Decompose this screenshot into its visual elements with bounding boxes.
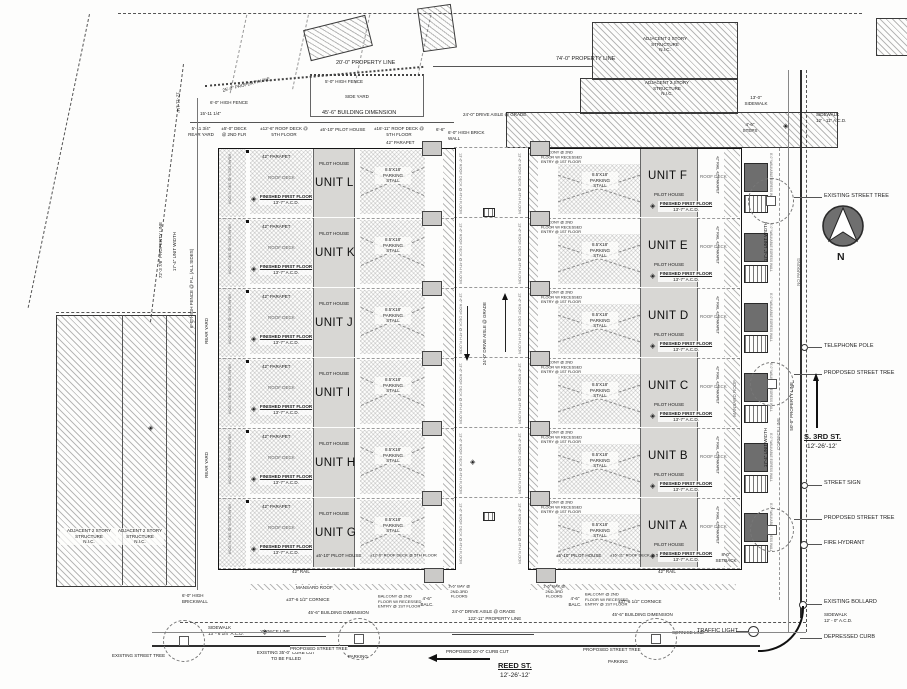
pilot-house-band: PILOT HOUSE UNIT L (313, 148, 355, 217)
rear-fence-line (197, 98, 198, 590)
deck-edge-strip (443, 288, 454, 357)
deck-edge-strip (443, 358, 454, 427)
entry-steps (744, 265, 768, 283)
pilot-house-dim-a: ±5'-10" PILOT HOUSE (556, 553, 601, 559)
rail-label: 42" RAIL (292, 569, 310, 575)
leader-line (806, 604, 822, 605)
balcony-box (530, 281, 550, 296)
roof-deck-label: ROOF DECK (268, 525, 295, 531)
pilot-house-label: PILOT HOUSE (319, 231, 349, 237)
adjacent-structure-a-label: ADJACENT 3 STORY STRUCTURE N.I.C. (610, 36, 720, 53)
roof-deck-4th-label: 13'-6" ROOF DECK @ 4TH FLOOR (517, 223, 522, 284)
survey-marker: ◈ (783, 122, 788, 130)
stoop-block: 8'-0" WALKABLE EGRESS WALL (742, 428, 780, 498)
dim-15-label: 15'-11 1/4" (200, 111, 221, 117)
rear-deck-label: REAR DECK @ 2ND FLOOR (227, 154, 232, 204)
fff-label: FINISHED FIRST FLOOR 13'-7" A.C.D. (259, 334, 313, 345)
balcony-box (530, 421, 550, 436)
deck-2nd-dim: ±5'-0" DECK @ 2ND FLR (218, 126, 250, 137)
property-line-74-label: 74'-0" PROPERTY LINE (556, 56, 615, 63)
setback-label: 8'-0" SETBACK (712, 552, 740, 563)
post-marker (246, 360, 249, 363)
fff-line2: 13'-7" A.C.D. (259, 340, 313, 346)
parking-stall: 8.5'X18' PARKING STALL (558, 374, 640, 424)
stall-label: 8.5'X18' PARKING STALL (582, 242, 618, 259)
rear-yard-label: REAR YARD (204, 452, 210, 478)
proposed-street-tree (750, 362, 794, 406)
aisle-centerline (454, 497, 528, 498)
survey-marker: ◈ (470, 458, 475, 466)
fff-marker: ◈ (650, 412, 655, 420)
third-st-lanes: 12'-26'-12' (807, 443, 837, 451)
property-line-72-label: 72'-3 7/8" PROPERTY LINE (158, 222, 164, 278)
roof-deck-4th-label: 13'-6" ROOF DECK @ 4TH FLOOR (458, 433, 463, 494)
fff-marker: ◈ (251, 195, 256, 203)
fire-hydrant-label: FIRE HYDRANT (824, 540, 865, 547)
fff-line2: 13'-7" A.C.D. (259, 270, 313, 276)
unit-row-west: REAR DECK @ 2ND FLOOR 42" PARAPET ROOF D… (218, 358, 454, 429)
reed-st-arrow-head (428, 654, 437, 662)
pilot-house-band: PILOT HOUSE UNIT K (313, 218, 355, 287)
pilot-house-label: PILOT HOUSE (654, 542, 684, 548)
adjacent-structure-sliver (417, 4, 457, 52)
third-st-arrow (816, 380, 818, 428)
fff-line1: FINISHED FIRST FLOOR (658, 271, 714, 277)
roof-deck-label: ROOF DECK (268, 175, 295, 181)
parking-label: PARKING (608, 659, 628, 665)
property-line-20-label: 20'-0" PROPERTY LINE (336, 60, 395, 67)
roof-deck-label: ROOF DECK (268, 245, 295, 251)
aisle-centerline (454, 147, 528, 148)
rear-deck-label: REAR DECK @ 2ND FLOOR (227, 364, 232, 414)
egress-wall-label: 8'-0" WALKABLE EGRESS WALL (769, 223, 773, 272)
unit-width-label-right: 17'-4" UNIT WIDTH (763, 428, 769, 467)
stall-label: 8.5'X18' PARKING STALL (375, 447, 411, 464)
unit-label: UNIT I (315, 387, 350, 399)
deck-edge-strip (443, 428, 454, 497)
survey-marker: ◈ (148, 424, 153, 432)
parapet-label: 42" PARAPET (262, 364, 291, 370)
rear-deck-label: REAR DECK @ 2ND FLOOR (227, 504, 232, 554)
stall-label: 8.5'X18' PARKING STALL (375, 237, 411, 254)
roof-deck-label: ROOF DECK (700, 314, 727, 320)
parking-stall: 8.5'X18' PARKING STALL (558, 234, 640, 284)
roofdeck-12-dim: ±12'-6" ROOF DECK @ 5TH FLOOR (254, 126, 314, 137)
property-line-50-label: 50'-0" PROPERTY LINE (789, 382, 795, 431)
fff-line1: FINISHED FIRST FLOOR (259, 264, 313, 270)
parking-stall: 8.5'X18' PARKING STALL (360, 220, 425, 284)
leader-line (794, 519, 822, 520)
post-marker (246, 220, 249, 223)
fff-line1: FINISHED FIRST FLOOR (658, 341, 714, 347)
fff-marker: ◈ (251, 475, 256, 483)
depressed-curb-label: DEPRESSED CURB (824, 634, 875, 641)
fff-line1: FINISHED FIRST FLOOR (658, 481, 714, 487)
roof-deck-4th-label: 13'-6" ROOF DECK @ 4TH FLOOR (517, 293, 522, 354)
post-marker (246, 150, 249, 153)
existing-tree-label-bottom: EXISTING STREET TREE (112, 653, 165, 659)
fff-marker: ◈ (650, 342, 655, 350)
north-arrow-icon (820, 203, 866, 249)
telephone-pole-label: TELEPHONE POLE (824, 343, 874, 350)
property-line-segment (433, 66, 593, 67)
parking-stall: 8.5'X18' PARKING STALL (360, 360, 425, 424)
street-sign-label: STREET SIGN (824, 480, 861, 487)
pilot-house-label: PILOT HOUSE (319, 161, 349, 167)
roof-deck-label: ROOF DECK (268, 385, 295, 391)
mansard-roof-label: MANSARD ROOF (296, 585, 333, 591)
unit-row-east: 13'-6" ROOF DECK @ 4TH FLOOR BALCONY @ 2… (528, 428, 740, 499)
entry-steps (744, 405, 768, 423)
rail-parapet-label: 42" RAIL 42" PARAPET (715, 366, 720, 404)
aisle-centerline (454, 287, 528, 288)
fence-pl-label: 6'-0" HIGH FENCE @ P.L. (ALL SIDES) (189, 238, 195, 328)
rear-deck-strip: REAR DECK @ 2ND FLOOR (218, 498, 246, 567)
fff-line2: 13'-7" A.C.D. (658, 557, 714, 563)
dimension-line (190, 122, 454, 123)
adjacent-structure-divider (166, 315, 167, 585)
balc-46-label: 4'-6" BALC. (566, 596, 584, 607)
roof-deck-4th-label: 13'-6" ROOF DECK @ 4TH FLOOR (458, 293, 463, 354)
balcony-box (422, 281, 442, 296)
brick-wall-label: 6'-0" HIGH BRICK WALL (448, 130, 490, 141)
fff-line2: 13'-7" A.C.D. (658, 487, 714, 493)
adjacent-structure-sliver (303, 15, 373, 62)
curb-return-arc (758, 606, 804, 652)
steps-46-label: 4'-6" STEPS (738, 122, 762, 133)
parking-stall: 8.5'X18' PARKING STALL (360, 150, 425, 214)
stall-label: 8.5'X18' PARKING STALL (375, 167, 411, 184)
fff-line2: 13'-7" A.C.D. (658, 207, 714, 213)
leader-line (807, 544, 822, 545)
parapet-dim-top: 42" PARAPET (386, 140, 415, 146)
roof-deck-label: ROOF DECK (700, 454, 727, 460)
deck-edge-strip (528, 218, 538, 287)
proposed-tree-label: PROPOSED STREET TREE (824, 515, 894, 522)
parking-label: PARKING (348, 654, 368, 660)
fff-line1: FINISHED FIRST FLOOR (259, 194, 313, 200)
tree-trunk (767, 525, 777, 535)
fff-line2: 13'-7" A.C.D. (259, 550, 313, 556)
post-marker (246, 430, 249, 433)
unit-label: UNIT C (648, 380, 689, 392)
north-label: N (837, 251, 845, 263)
unit-row-east: 13'-6" ROOF DECK @ 4TH FLOOR BALCONY @ 2… (528, 288, 740, 359)
proposed-tree-label-bottom: PROPOSED STREET TREE (290, 646, 348, 652)
balcony-box (530, 351, 550, 366)
roof-deck-label: ROOF DECK (268, 455, 295, 461)
building-dimension-bottom: 45'-6" BUILDING DIMENSION (308, 610, 369, 616)
parking-stall: 8.5'X18' PARKING STALL (360, 290, 425, 354)
balcony-box (422, 421, 442, 436)
fff-line1: FINISHED FIRST FLOOR (259, 474, 313, 480)
stall-label: 8.5'X18' PARKING STALL (582, 452, 618, 469)
rail-parapet-label: 42" RAIL 42" PARAPET (715, 156, 720, 194)
roofdeck-dim-g: ±12'-6" ROOF DECK @ 5TH FLOOR (370, 553, 437, 558)
roof-deck-label: ROOF DECK (700, 524, 727, 530)
flow-arrow-up (505, 300, 506, 352)
fff-line2: 13'-7" A.C.D. (259, 410, 313, 416)
stall-label: 8.5'X18' PARKING STALL (375, 307, 411, 324)
roof-deck-label: ROOF DECK (700, 384, 727, 390)
entry-steps (744, 475, 768, 493)
parking-stall: 8.5'X18' PARKING STALL (558, 164, 640, 214)
rear-deck-label: REAR DECK @ 2ND FLOOR (227, 224, 232, 274)
fff-line2: 13'-7" A.C.D. (658, 417, 714, 423)
stoop (744, 303, 768, 332)
fff-line1: FINISHED FIRST FLOOR (658, 551, 714, 557)
fff-line2: 13'-7" A.C.D. (259, 200, 313, 206)
curb-cut-proposed-line (452, 634, 534, 635)
aisle-centerline (454, 217, 528, 218)
rear-yard-dim: 5'-11 3/4" REAR YARD (186, 126, 216, 137)
roofdeck-16-dim: ±16'-11" ROOF DECK @ 5TH FLOOR (368, 126, 430, 137)
rear-deck-strip: REAR DECK @ 2ND FLOOR (218, 428, 246, 497)
arrow-head-down (464, 354, 470, 361)
rail-parapet-label: 42" RAIL 42" PARAPET (715, 506, 720, 544)
bay-16-label: 1'-6" BAY @ 2ND-3RD FLOORS (443, 584, 475, 599)
fff-line2: 13'-7" A.C.D. (658, 347, 714, 353)
parapet-label: 42" PARAPET (262, 154, 291, 160)
rear-yard-label: REAR YARD (204, 318, 210, 344)
stall-label: 8.5'X18' PARKING STALL (375, 377, 411, 394)
adjacent-structure-left (56, 315, 196, 587)
adjacent-structure-b-label: ADJACENT 2 STORY STRUCTURE N.I.C. (612, 80, 722, 97)
unit-label: UNIT A (648, 520, 687, 532)
balcony-box (530, 491, 550, 506)
stall-label: 8.5'X18' PARKING STALL (582, 172, 618, 189)
light-fixture-icon (483, 512, 495, 521)
fff-line1: FINISHED FIRST FLOOR (259, 334, 313, 340)
roof-deck-label: ROOF DECK (700, 174, 727, 180)
leader-line (807, 347, 822, 348)
sidewalk-13-6-label: SIDEWALK 13' - 6 1/4" A.C.D. (208, 625, 260, 636)
fence-6-label: 6'-0" HIGH FENCE (210, 100, 248, 106)
pilot-house-label: PILOT HOUSE (319, 511, 349, 517)
unit-label: UNIT F (648, 170, 687, 182)
mansard-strip-bottom-west (250, 584, 452, 590)
flow-arrow-down (467, 306, 468, 356)
fff-line2: 13'-7" A.C.D. (259, 480, 313, 486)
roof-deck-4th-label: 13'-6" ROOF DECK @ 4TH FLOOR (458, 363, 463, 424)
adjacent-left-b-label: ADJACENT 2 STORY STRUCTURE N.I.C. (116, 528, 164, 545)
proposed-street-tree-bottom (635, 618, 677, 660)
tree-trunk (354, 634, 364, 644)
tree-trunk (651, 634, 661, 644)
balcony-box (530, 141, 550, 156)
sidewalk-line-bottom (152, 632, 806, 633)
unit-label: UNIT B (648, 450, 688, 462)
sidewalk-12-0-label: SIDEWALK 12' - 0" A.C.D. (824, 612, 884, 623)
brickwall-label: 6'-0" HIGH BRICKWALL (182, 593, 222, 604)
rear-deck-strip: REAR DECK @ 2ND FLOOR (218, 218, 246, 287)
pilot-house-label: PILOT HOUSE (654, 262, 684, 268)
parking-stall: 8.5'X18' PARKING STALL (558, 444, 640, 494)
fff-label: FINISHED FIRST FLOOR 13'-7" A.C.D. (259, 264, 313, 275)
pilot-house-band: PILOT HOUSE UNIT J (313, 288, 355, 357)
prop-12-dim: 12'-11 1/4" (175, 92, 181, 113)
balcony-box (424, 568, 444, 583)
unit-width-label-right: 17'-4" UNIT WIDTH (763, 222, 769, 261)
fff-marker: ◈ (650, 552, 655, 560)
rail-parapet-label: 42" RAIL 42" PARAPET (715, 226, 720, 264)
unit-width-label-left: 17'-4" UNIT WIDTH (172, 232, 178, 271)
curb-cut-existing-label: EXISTING 35'-0" CURB CUT TO BE FILLED (230, 650, 342, 661)
deck-edge-strip (528, 498, 538, 567)
unit-row-east: 13'-6" ROOF DECK @ 4TH FLOOR BALCONY @ 2… (528, 148, 740, 219)
fire-hydrant-symbol (800, 541, 808, 549)
roof-deck-4th-label: 13'-6" ROOF DECK @ 4TH FLOOR (458, 503, 463, 564)
stall-label: 8.5'X18' PARKING STALL (582, 522, 618, 539)
drive-aisle-top-label: 24'-0" DRIVE AISLE @ GRADE (463, 112, 526, 118)
deck-edge-strip (443, 218, 454, 287)
pilot-house-label: PILOT HOUSE (654, 332, 684, 338)
entry-steps (744, 335, 768, 353)
stoop-block: 8'-0" WALKABLE EGRESS WALL (742, 288, 780, 358)
mansard-strip (724, 288, 740, 357)
balcony-box (530, 211, 550, 226)
parapet-label: 42" PARAPET (262, 294, 291, 300)
rear-deck-strip: REAR DECK @ 2ND FLOOR (218, 358, 246, 427)
existing-tree-label: EXISTING STREET TREE (824, 193, 889, 200)
parapet-label: 42" PARAPET (262, 434, 291, 440)
mansard-strip (724, 218, 740, 287)
pilot-house-dim-g: ±5'-10" PILOT HOUSE (316, 553, 361, 559)
egress-wall-label: 8'-0" WALKABLE EGRESS WALL (769, 433, 773, 482)
site-plan: ADJACENT 3 STORY STRUCTURE N.I.C. ADJACE… (0, 0, 907, 689)
third-st-arrow-head (813, 373, 819, 381)
rear-deck-strip: REAR DECK @ 2ND FLOOR (218, 288, 246, 357)
fff-marker: ◈ (251, 545, 256, 553)
fff-line1: FINISHED FIRST FLOOR (259, 544, 313, 550)
side-yard-label: SIDE YARD (345, 94, 369, 100)
deck-edge-strip (443, 148, 454, 217)
roof-deck-4th-label: 13'-6" ROOF DECK @ 4TH FLOOR (517, 153, 522, 214)
fence-5-label: 5'-0" HIGH FENCE (325, 79, 363, 85)
roof-deck-4th-label: 13'-6" ROOF DECK @ 4TH FLOOR (517, 363, 522, 424)
balcony-box (536, 568, 556, 583)
rail-parapet-label: 42" RAIL 42" PARAPET (715, 436, 720, 474)
unit-label: UNIT L (315, 177, 354, 189)
tree-trunk (766, 196, 776, 206)
fff-label: FINISHED FIRST FLOOR 13'-7" A.C.D. (259, 474, 313, 485)
parapet-label: 42" PARAPET (262, 224, 291, 230)
rear-deck-label: REAR DECK @ 2ND FLOOR (227, 294, 232, 344)
balcony-box (422, 351, 442, 366)
fff-label: FINISHED FIRST FLOOR 13'-7" A.C.D. (658, 411, 714, 422)
curb-cut-existing-line (234, 636, 326, 637)
fff-line1: FINISHED FIRST FLOOR (658, 201, 714, 207)
parking-stall: 8.5'X18' PARKING STALL (360, 430, 425, 494)
unit-row-west: REAR DECK @ 2ND FLOOR 42" PARAPET ROOF D… (218, 428, 454, 499)
property-line-left-horiz (56, 312, 196, 313)
roof-deck-label: ROOF DECK (268, 315, 295, 321)
cornice-37-label: ±37'-6 1/2" CORNICE (286, 597, 329, 603)
drive-aisle-center-label: 24'-0" DRIVE AISLE @ GRADE (482, 302, 488, 365)
roof-deck-4th-label: 13'-6" ROOF DECK @ 4TH FLOOR (517, 433, 522, 494)
curb-cut-proposed-label: PROPOSED 20'-0" CURB CUT (446, 649, 509, 655)
stall-label: 8.5'X18' PARKING STALL (582, 312, 618, 329)
fff-line1: FINISHED FIRST FLOOR (658, 411, 714, 417)
deck-edge-strip (528, 358, 538, 427)
light-fixture-icon (483, 208, 495, 217)
deck-edge-strip (443, 498, 454, 567)
rear-deck-strip: REAR DECK @ 2ND FLOOR (218, 148, 246, 217)
deck-edge-strip (528, 148, 538, 217)
deck-edge-strip (528, 288, 538, 357)
unit-label: UNIT G (315, 527, 356, 539)
pilot-house-band: PILOT HOUSE UNIT I (313, 358, 355, 427)
rail-parapet-label: 42" RAIL 42" PARAPET (715, 296, 720, 334)
cornice-37-label: ±37'-6 1/2" CORNICE (618, 599, 661, 605)
sidewalk-12-11-label: SIDEWALK 12' - 11" A.C.D. (816, 112, 872, 123)
roof-deck-4th-label: 13'-6" ROOF DECK @ 4TH FLOOR (458, 153, 463, 214)
roof-deck-4th-label: 13'-6" ROOF DECK @ 4TH FLOOR (458, 223, 463, 284)
bollard-label: EXISTING BOLLARD (824, 599, 877, 606)
fff-marker: ◈ (251, 265, 256, 273)
building-dimension-top: 45'-6" BUILDING DIMENSION (322, 110, 396, 117)
leader-line (794, 197, 822, 198)
arrow-head-up (502, 293, 508, 300)
unit-label: UNIT D (648, 310, 689, 322)
property-line-bottom (180, 622, 806, 623)
dim-66-label: 6'-6" (436, 127, 445, 133)
balcony-box (422, 491, 442, 506)
tree-trunk (179, 636, 189, 646)
property-line-122-label: 122'-11" PROPERTY LINE (468, 616, 521, 622)
aisle-centerline (454, 427, 528, 428)
unit-label: UNIT H (315, 457, 356, 469)
leader-line (800, 638, 822, 639)
drive-aisle-bottom-label: 24'-0" DRIVE AISLE @ GRADE (452, 609, 515, 615)
roof-deck-label: ROOF DECK (700, 244, 727, 250)
reed-st-label: REED ST. (498, 661, 532, 670)
balc-46-label: 4'-6" BALC. (418, 596, 436, 607)
pilot-house-label: PILOT HOUSE (654, 192, 684, 198)
fff-label: FINISHED FIRST FLOOR 13'-7" A.C.D. (259, 544, 313, 555)
unit-row-east: 13'-6" ROOF DECK @ 4TH FLOOR BALCONY @ 2… (528, 358, 740, 429)
unit-label: UNIT J (315, 317, 353, 329)
pilot-house-label: PILOT HOUSE (654, 402, 684, 408)
leader-line (807, 485, 822, 486)
rail-label: 42" RAIL (658, 569, 676, 575)
fff-label: FINISHED FIRST FLOOR 13'-7" A.C.D. (658, 271, 714, 282)
existing-street-tree (748, 178, 794, 224)
sidewalk-13-label: 13'-0" SIDEWALK (741, 95, 771, 106)
pilot-house-dim: ±5'-10" PILOT HOUSE (320, 127, 365, 133)
fff-line2: 13'-7" A.C.D. (658, 277, 714, 283)
pilot-house-label: PILOT HOUSE (319, 441, 349, 447)
reed-st-lanes: 12'-26'-12' (500, 672, 530, 680)
unit-row-west: REAR DECK @ 2ND FLOOR 42" PARAPET ROOF D… (218, 218, 454, 289)
tree-trunk (767, 379, 777, 389)
building-dimension-bottom: 45'-6" BUILDING DIMENSION (612, 612, 673, 618)
proposed-tree-label-bottom: PROPOSED STREET TREE (583, 647, 641, 653)
egress-wall-label: 8'-0" WALKABLE EGRESS WALL (769, 293, 773, 342)
parapet-label: 42" PARAPET (262, 504, 291, 510)
fff-label: FINISHED FIRST FLOOR 13'-7" A.C.D. (259, 194, 313, 205)
third-st-label: S. 3RD ST. (804, 432, 841, 441)
post-marker (246, 290, 249, 293)
no-parking-label: NO PARKING (796, 258, 802, 286)
existing-street-tree-bottom (163, 620, 205, 662)
unit-label: UNIT K (315, 247, 355, 259)
pilot-house-label: PILOT HOUSE (654, 472, 684, 478)
property-line-top (118, 13, 862, 14)
rear-deck-label: REAR DECK @ 2ND FLOOR (227, 434, 232, 484)
deck-edge-strip (528, 428, 538, 497)
fff-label: FINISHED FIRST FLOOR 13'-7" A.C.D. (658, 551, 714, 562)
